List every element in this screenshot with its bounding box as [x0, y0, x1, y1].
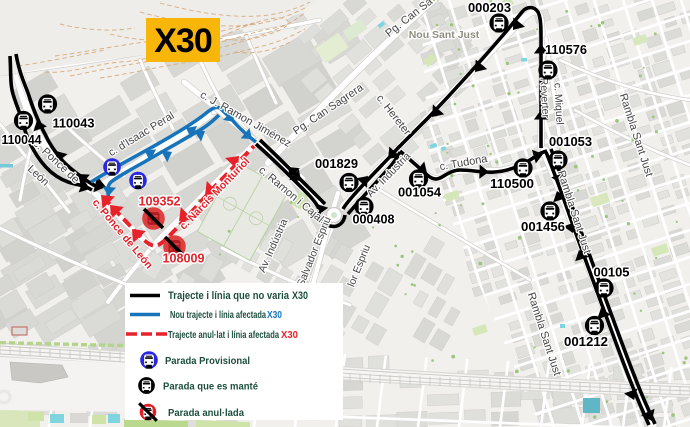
svg-text:001456: 001456 — [521, 219, 565, 234]
svg-text:Nou Sant Just: Nou Sant Just — [409, 29, 480, 41]
svg-text:001053: 001053 — [549, 134, 592, 149]
svg-text:X30: X30 — [281, 330, 298, 341]
svg-text:001212: 001212 — [564, 334, 608, 349]
svg-text:Reverter: Reverter — [537, 77, 551, 118]
svg-text:000203: 000203 — [468, 0, 511, 15]
svg-text:Trajecte i línia que no varia: Trajecte i línia que no varia — [168, 290, 290, 302]
svg-text:00105: 00105 — [594, 265, 630, 280]
svg-text:Trajecte anul·lat i línia afec: Trajecte anul·lat i línia afectada — [168, 330, 279, 341]
svg-text:110500: 110500 — [490, 176, 534, 191]
svg-text:001054: 001054 — [398, 185, 442, 200]
svg-text:c. Miquel: c. Miquel — [551, 83, 565, 126]
svg-text:001829: 001829 — [315, 156, 358, 171]
svg-text:X30: X30 — [292, 290, 308, 302]
svg-text:Parada anul·lada: Parada anul·lada — [168, 407, 244, 419]
svg-text:Parada Provisional: Parada Provisional — [165, 355, 250, 367]
svg-text:110044: 110044 — [2, 132, 43, 147]
svg-text:000408: 000408 — [353, 212, 395, 227]
svg-text:X30: X30 — [154, 22, 212, 60]
svg-text:110576: 110576 — [545, 42, 587, 57]
svg-text:Parada que es manté: Parada que es manté — [163, 381, 258, 393]
svg-text:Nou trajecte i línia afectada: Nou trajecte i línia afectada — [170, 310, 266, 321]
svg-text:108009: 108009 — [163, 251, 205, 266]
svg-text:X30: X30 — [267, 310, 282, 321]
svg-text:109352: 109352 — [139, 194, 181, 209]
svg-text:110043: 110043 — [53, 116, 95, 131]
